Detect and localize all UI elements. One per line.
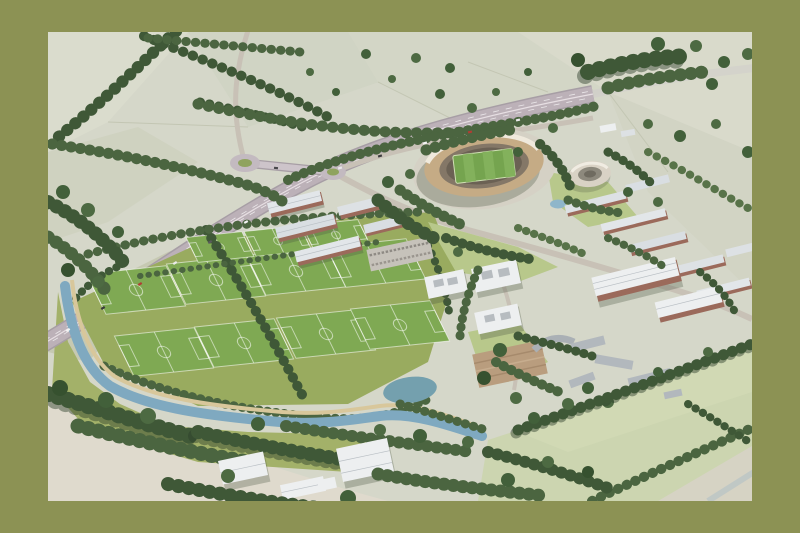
rendering-canvas <box>42 24 766 508</box>
aerial-render-svg: Aerial masterplan rendering of a riversi… <box>0 0 800 533</box>
roundabout-west <box>230 154 260 172</box>
framed-render: Aerial masterplan rendering of a riversi… <box>0 0 800 533</box>
